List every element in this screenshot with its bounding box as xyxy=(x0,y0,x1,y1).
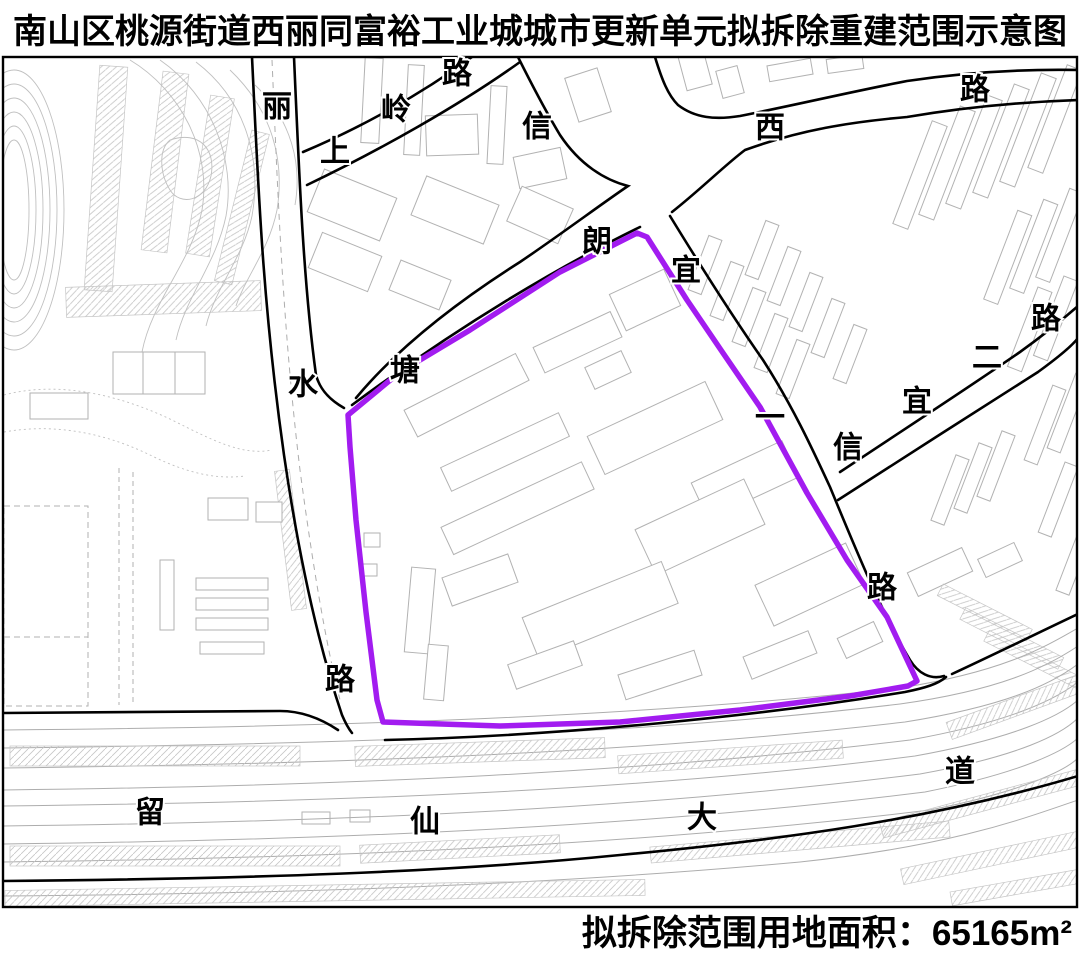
road-label-tanglang-1: 塘 xyxy=(390,354,420,388)
road-label-xinyi1-2: 宜 xyxy=(671,254,701,288)
area-statistic: 拟拆除范围用地面积：65165m² xyxy=(0,908,1072,953)
road-label-tanglang-2: 朗 xyxy=(582,226,612,259)
road-label-xi-1: 西 xyxy=(755,112,785,145)
road-label-xinyi2-2: 宜 xyxy=(902,385,932,419)
liuxian-north-edge-west xyxy=(2,711,338,730)
road-label-shangling-2: 岭 xyxy=(381,94,411,127)
southeast-terrace-blocks xyxy=(937,584,1080,696)
road-label-lishui-1: 丽 xyxy=(262,91,292,124)
road-label-xi-2: 路 xyxy=(960,74,991,107)
between-xinyi-roads-blocks xyxy=(688,220,1022,596)
road-label-xinyi1-1: 信 xyxy=(522,111,552,144)
road-label-xinyi2-3: 二 xyxy=(972,342,1002,375)
road-label-xinyi2-1: 信 xyxy=(833,432,863,465)
road-label-liuxian-1: 留 xyxy=(135,797,165,830)
road-label-shangling-1: 上 xyxy=(320,136,350,169)
road-label-lishui-2: 水 xyxy=(288,369,319,402)
road-label-liuxian-3: 大 xyxy=(687,802,717,835)
road-label-liuxian-4: 道 xyxy=(945,756,975,789)
road-label-lishui-3: 路 xyxy=(325,664,356,697)
west-blocks xyxy=(4,352,282,706)
road-label-xinyi1-4: 路 xyxy=(867,572,898,605)
lishui-road-east-line xyxy=(294,57,344,408)
map-canvas: 丽 水 路 上 岭 路 塘 朗 西 路 信 宜 一 路 信 宜 二 路 留 仙 … xyxy=(0,0,1080,953)
road-label-shangling-3: 路 xyxy=(442,58,473,91)
road-label-liuxian-2: 仙 xyxy=(410,806,440,839)
area-statistic-text: 拟拆除范围用地面积：65165m² xyxy=(582,905,1072,953)
road-label-xinyi1-3: 一 xyxy=(755,402,785,435)
road-label-xinyi2-4: 路 xyxy=(1031,303,1062,336)
